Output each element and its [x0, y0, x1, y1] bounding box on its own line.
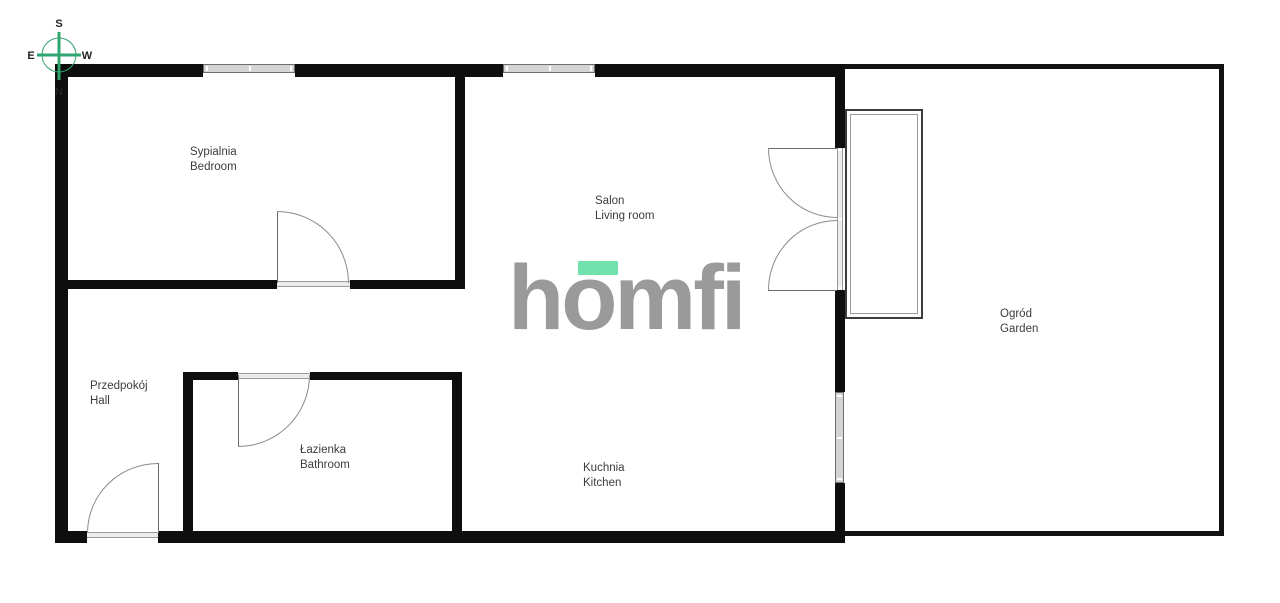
room-name-pl: Łazienka — [300, 443, 350, 458]
room-label-bedroom: Sypialnia Bedroom — [190, 145, 237, 174]
terrace-door-frame-tick-middle — [838, 218, 842, 220]
terrace-door-upper-swing-arc — [768, 148, 837, 218]
terrace-door-frame-tick-bottom — [838, 287, 842, 289]
room-name-pl: Sypialnia — [190, 145, 237, 160]
entrance-door-leaf — [158, 463, 159, 533]
room-label-living-room: Salon Living room — [595, 194, 654, 223]
wall-right-segment-1 — [835, 64, 845, 148]
logo-text: homfi — [508, 248, 778, 348]
wall-left — [55, 64, 68, 543]
wall-bedroom-living-divider — [455, 64, 465, 289]
wall-top-segment-3 — [595, 64, 845, 77]
compass-label-bottom: N — [55, 86, 63, 98]
room-name-en: Bathroom — [300, 458, 350, 473]
room-label-hall: Przedpokój Hall — [90, 379, 148, 408]
room-name-pl: Kuchnia — [583, 461, 625, 476]
wall-bathroom-right — [452, 372, 462, 531]
wall-bottom-segment-2 — [158, 531, 845, 543]
room-name-pl: Ogród — [1000, 307, 1038, 322]
room-label-kitchen: Kuchnia Kitchen — [583, 461, 625, 490]
room-label-bathroom: Łazienka Bathroom — [300, 443, 350, 472]
terrace-door-lower-swing-arc — [768, 220, 837, 290]
wall-right-segment-3 — [835, 483, 845, 531]
compass-rose: S N E W — [18, 14, 102, 106]
terrace-deck — [845, 109, 923, 319]
wall-bedroom-bottom-2 — [350, 280, 465, 289]
garden-wall-right — [1219, 64, 1224, 536]
homfi-logo: homfi — [508, 248, 778, 352]
wall-bathroom-left — [183, 372, 193, 531]
garden-wall-bottom — [845, 531, 1224, 536]
room-name-pl: Salon — [595, 194, 654, 209]
room-name-pl: Przedpokój — [90, 379, 148, 394]
room-name-en: Bedroom — [190, 160, 237, 175]
logo-macron-accent — [578, 261, 618, 275]
window-bedroom-icon — [203, 64, 295, 73]
entrance-door-swing-arc — [87, 463, 158, 533]
compass-label-right: W — [82, 50, 93, 62]
room-label-garden: Ogród Garden — [1000, 307, 1038, 336]
terrace-door-lower-leaf — [768, 290, 837, 291]
room-name-en: Garden — [1000, 322, 1038, 337]
terrace-door-frame-tick-top — [838, 149, 842, 151]
wall-right-segment-2 — [835, 290, 845, 392]
bedroom-door-swing-arc — [277, 211, 349, 283]
bathroom-door-swing-arc — [238, 375, 310, 447]
terrace-deck-inner-line — [850, 114, 918, 314]
wall-bedroom-bottom-1 — [55, 280, 277, 289]
garden-wall-top — [845, 64, 1224, 69]
compass-label-left: E — [27, 50, 34, 62]
room-name-en: Hall — [90, 394, 148, 409]
compass-label-top: S — [55, 18, 62, 30]
room-name-en: Living room — [595, 209, 654, 224]
wall-top-segment-2 — [295, 64, 503, 77]
wall-bathroom-top-2 — [310, 372, 462, 380]
floor-plan: S N E W homfi Sypialnia Bedroom Salon Li… — [0, 0, 1280, 603]
wall-bottom-segment-1 — [55, 531, 87, 543]
window-living-room-icon — [503, 64, 595, 73]
window-kitchen-icon — [835, 392, 844, 483]
room-name-en: Kitchen — [583, 476, 625, 491]
